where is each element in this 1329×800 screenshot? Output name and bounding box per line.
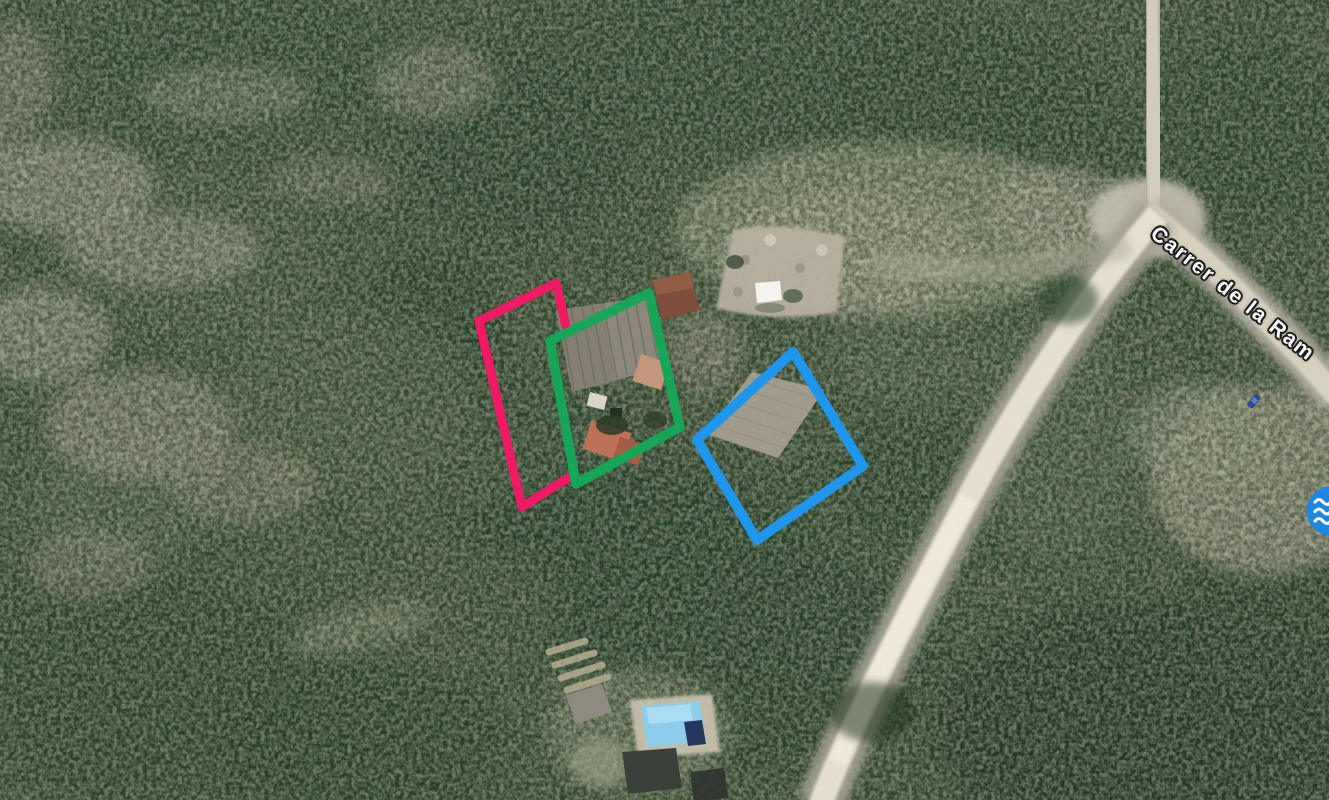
satellite-map-canvas[interactable] [0,0,1329,800]
terrain-texture [0,0,1329,800]
map-viewport: Carrer de la Ram [0,0,1329,800]
